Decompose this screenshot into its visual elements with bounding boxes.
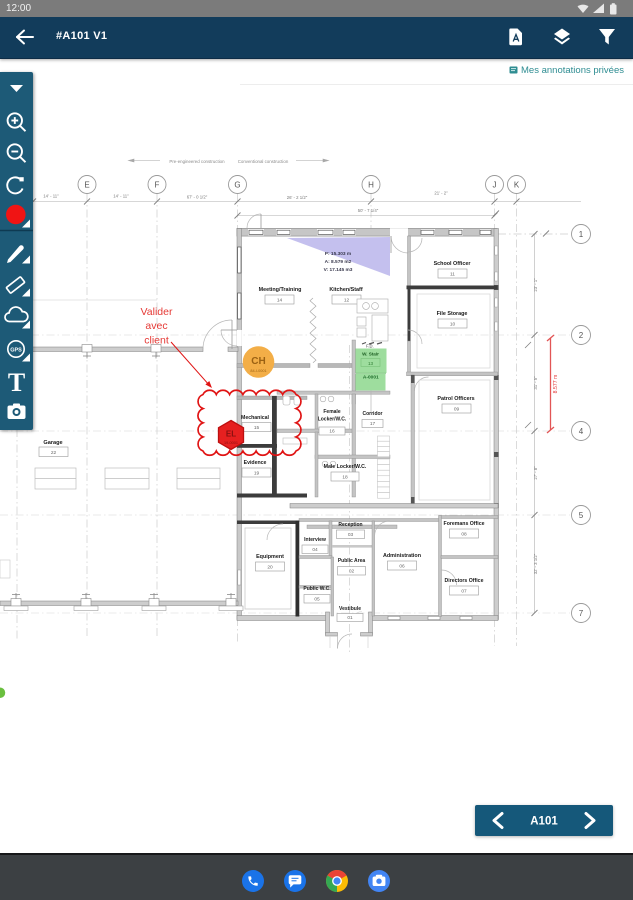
svg-text:Reception: Reception [338,522,362,528]
svg-text:01: 01 [347,615,353,621]
svg-text:Valider: Valider [141,306,173,318]
svg-text:8.577 m: 8.577 m [553,375,559,394]
svg-text:19: 19 [254,471,260,477]
svg-text:G: G [234,180,240,189]
svg-text:Public W.C.: Public W.C. [303,586,331,592]
svg-text:P: 15.303 m: P: 15.303 m [325,251,351,257]
svg-text:Conventional construction: Conventional construction [238,159,289,164]
svg-text:20: 20 [267,565,273,571]
svg-text:12: 12 [344,298,350,304]
svg-text:Patrol Officers: Patrol Officers [437,396,474,402]
svg-text:A: 8.579 m2: A: 8.579 m2 [325,259,352,265]
svg-text:10: 10 [450,322,456,328]
svg-text:50' - 7 1/4": 50' - 7 1/4" [358,208,379,213]
svg-text:Directors Office: Directors Office [445,578,484,584]
svg-text:31' - 5": 31' - 5" [533,376,538,390]
svg-text:client: client [144,335,169,347]
svg-text:EL: EL [226,430,236,439]
svg-text:Public Area: Public Area [338,558,366,564]
svg-text:08: 08 [461,532,467,538]
svg-text:15: 15 [254,425,260,431]
svg-text:14: 14 [277,298,283,304]
svg-text:11: 11 [450,272,455,278]
svg-text:Male Locker/W.C.: Male Locker/W.C. [324,464,367,470]
svg-text:14' - 11": 14' - 11" [113,194,129,199]
svg-text:2: 2 [579,331,584,340]
svg-text:A-0001: A-0001 [363,375,379,381]
svg-text:17: 17 [370,421,376,427]
svg-text:J: J [493,180,497,189]
svg-text:Garage: Garage [43,440,62,446]
svg-text:Foremans Office: Foremans Office [444,521,485,527]
svg-text:Interview: Interview [304,537,326,543]
svg-text:Meeting/Training: Meeting/Training [259,287,302,293]
svg-text:avec: avec [145,320,167,332]
svg-text:04: 04 [312,547,318,553]
svg-text:7: 7 [579,609,584,618]
svg-text:V: 17.145 m3: V: 17.145 m3 [324,267,353,273]
svg-text:27' - 8": 27' - 8" [533,466,538,480]
svg-text:Corridor: Corridor [363,411,383,417]
svg-text:21' - 2": 21' - 2" [434,191,448,196]
svg-text:1: 1 [579,230,584,239]
svg-text:26' - 2 1/2": 26' - 2 1/2" [287,195,308,200]
svg-text:06: 06 [399,564,405,570]
svg-text:14' - 11": 14' - 11" [43,194,59,199]
svg-text:22: 22 [51,450,57,456]
svg-text:84-I-0001: 84-I-0001 [250,369,266,373]
svg-text:T: T [8,368,25,397]
svg-text:H: H [368,180,374,189]
svg-text:5: 5 [579,511,584,520]
svg-text:Vestibule: Vestibule [339,606,361,612]
svg-text:Pre-engineered construction: Pre-engineered construction [169,159,225,164]
svg-text:4: 4 [579,427,584,436]
svg-text:02: 02 [349,569,355,575]
svg-text:19-0001: 19-0001 [224,441,238,445]
svg-text:Kitchen/Staff: Kitchen/Staff [329,287,362,293]
svg-text:CH: CH [251,356,265,367]
svg-text:Evidence: Evidence [244,460,267,466]
svg-text:05: 05 [314,597,320,603]
svg-text:F: F [155,180,160,189]
svg-text:Mechanical: Mechanical [241,415,270,421]
svg-text:16: 16 [329,429,335,435]
svg-text:03: 03 [348,532,354,538]
svg-text:23' - 1": 23' - 1" [533,278,538,292]
svg-text:Administration: Administration [383,553,421,559]
svg-text:Locker/W.C.: Locker/W.C. [318,417,347,423]
svg-text:E: E [84,180,89,189]
svg-text:W. Stair: W. Stair [362,352,379,357]
svg-text:09: 09 [454,407,460,413]
svg-text:File Storage: File Storage [437,311,468,317]
svg-text:13: 13 [368,361,374,366]
svg-text:A101: A101 [530,816,558,828]
svg-text:32' - 3 1/2": 32' - 3 1/2" [533,553,538,574]
svg-text:K: K [514,180,520,189]
svg-text:Female: Female [323,409,340,415]
svg-text:67' - 0 1/2": 67' - 0 1/2" [187,195,208,200]
svg-text:GPS: GPS [10,348,22,354]
svg-text:School Officer: School Officer [434,261,472,267]
svg-text:07: 07 [461,589,467,595]
svg-text:Equipment: Equipment [256,554,284,560]
svg-text:18: 18 [342,475,348,481]
